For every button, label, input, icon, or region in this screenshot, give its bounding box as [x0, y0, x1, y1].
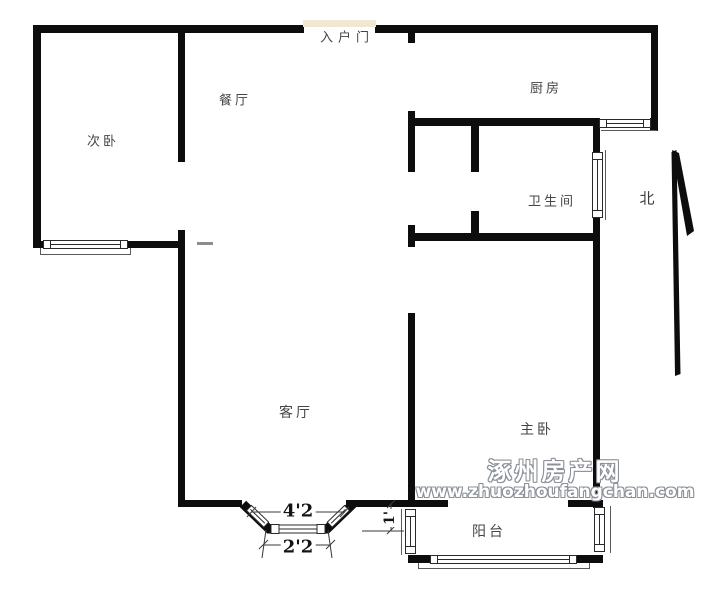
- window-balcony-bottom: [430, 555, 577, 564]
- wall-bathroom-bottom: [408, 233, 600, 241]
- watermark-site-url: www.zhuozhoufangchan.com: [416, 482, 695, 502]
- wall-divider-living-left: [178, 230, 185, 507]
- sill-bathroom-window: [605, 150, 606, 220]
- room-label-balcony: 阳台: [472, 521, 506, 541]
- window-bathroom: [592, 152, 603, 218]
- wall-living-bottom: [178, 500, 242, 507]
- room-label-living: 客厅: [279, 402, 313, 422]
- wall-kitchen-bottom: [408, 118, 600, 126]
- window-bedroom2: [43, 240, 128, 249]
- wall-divider-dining-upper: [178, 25, 185, 162]
- dimension-lines: [247, 500, 404, 558]
- dimension-bay-inner: 2'2: [281, 537, 316, 558]
- sill-bedroom2-window: [40, 248, 131, 255]
- wall-top-right: [375, 25, 658, 33]
- dimension-bay-outer: 4'2: [281, 501, 316, 522]
- sill-kitchen-window: [601, 130, 657, 131]
- wall-bathroom-right-upper: [593, 126, 600, 154]
- wall-master-left: [408, 313, 415, 507]
- wall-hall-stub-top: [408, 25, 415, 43]
- window-balcony-left: [405, 509, 416, 554]
- sill-balcony-right: [610, 506, 611, 553]
- compass-north-label: 北: [639, 188, 654, 209]
- wall-outer-left: [33, 25, 41, 248]
- wall-top-left: [33, 25, 304, 33]
- dimension-balcony-side: 1': [382, 509, 398, 527]
- room-label-kitchen: 厨房: [530, 78, 562, 97]
- window-balcony-right: [594, 507, 605, 552]
- north-arrow-icon: [672, 150, 695, 376]
- wall-bathroom-divider-a: [471, 124, 479, 172]
- wall-outer-right-top: [651, 25, 658, 124]
- room-label-master-bedroom: 主卧: [520, 419, 554, 439]
- room-label-entry-door: 入户门: [320, 27, 374, 46]
- room-label-dining: 餐厅: [219, 90, 251, 109]
- door-mark-dash: [197, 242, 213, 245]
- room-label-bathroom: 卫生间: [528, 191, 576, 210]
- room-label-bedroom2: 次卧: [87, 131, 119, 150]
- sill-balcony-left: [401, 509, 402, 555]
- floorplan-canvas: 入户门 餐厅 次卧 厨房 卫生间 客厅 主卧 阳台 北 4'2 2'2 1' 涿…: [0, 0, 706, 600]
- window-kitchen: [599, 119, 651, 128]
